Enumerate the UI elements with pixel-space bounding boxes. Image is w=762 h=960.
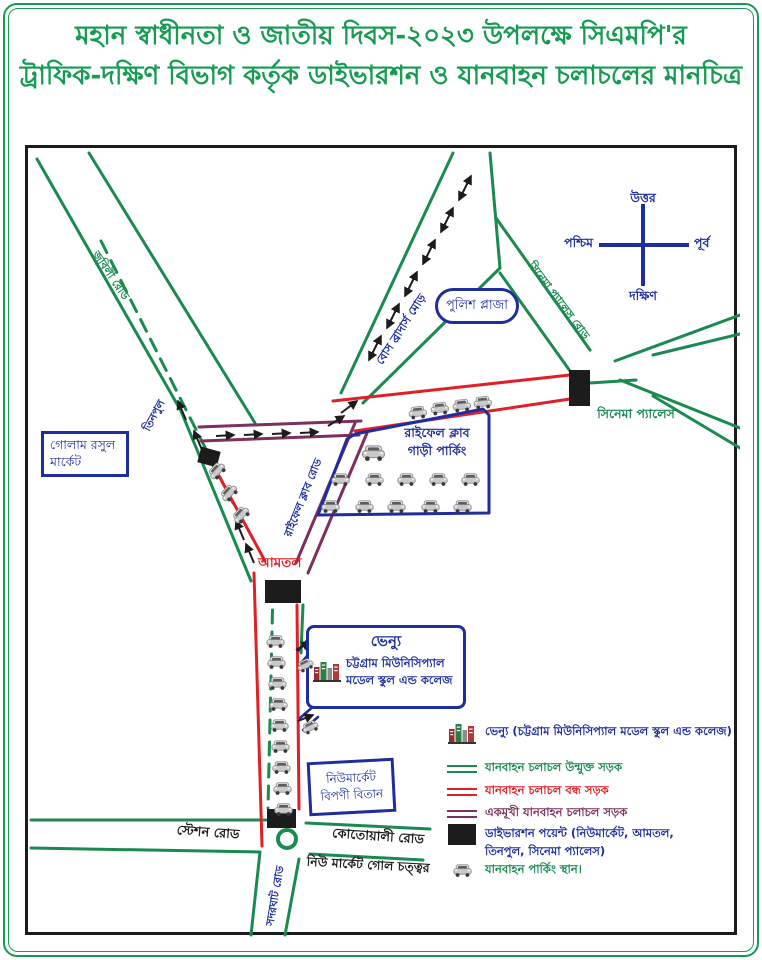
arrow-icon xyxy=(341,401,357,413)
legend-closed-road-text: যানবাহন চলাচল বন্ধ সড়ক xyxy=(485,782,609,801)
road-line-closed xyxy=(254,573,262,846)
compass-north: উত্তর xyxy=(630,190,656,210)
car-icon xyxy=(397,471,416,484)
oneway-road-line-icon xyxy=(447,810,477,818)
car-icon xyxy=(272,759,291,772)
car-icon xyxy=(269,696,288,709)
poster-title: মহান স্বাধীনতা ও জাতীয় দিবস-২০২৩ উপলক্ষ… xyxy=(0,16,762,97)
car-icon xyxy=(362,442,386,458)
road-line-open xyxy=(341,153,453,393)
car-icon xyxy=(429,471,448,484)
rifle-parking-label: রাইফেল ক্লাব গাড়ী পার্কিং xyxy=(384,424,490,459)
car-icon xyxy=(365,471,384,484)
legend-diversion-text: ডাইভারশন পয়েন্ট (নিউমার্কেট, আমতল, xyxy=(485,825,674,844)
car-icon xyxy=(451,396,471,411)
arrow-icon xyxy=(300,432,318,433)
car-icon xyxy=(274,801,293,814)
rifle-parking-line2: গাড়ী পার্কিং xyxy=(384,442,490,460)
legend-open-road-text: যানবাহন চলাচল উন্মুক্ত সড়ক xyxy=(485,759,622,778)
venue-title: ভেন্যু xyxy=(313,630,459,655)
arrow-icon xyxy=(459,188,465,200)
car-icon xyxy=(446,864,478,877)
golam-rasul-line2: মার্কেট xyxy=(50,454,120,471)
arrow-icon xyxy=(405,284,411,296)
car-icon xyxy=(268,675,287,688)
legend-oneway-road: একমূখী যানবাহন চলাচল সড়ক xyxy=(446,804,627,823)
legend-diversion: ডাইভারশন পয়েন্ট (নিউমার্কেট, আমতল, xyxy=(446,824,674,845)
car-icon xyxy=(355,498,374,511)
diversion-point-rect xyxy=(569,370,590,406)
road-line-open xyxy=(490,153,500,268)
legend-open-road: যানবাহন চলাচল উন্মুক্ত সড়ক xyxy=(446,759,622,778)
arrow-icon xyxy=(423,252,429,264)
arrow-icon xyxy=(244,434,262,435)
cinema-palace-label: সিনেমা প্যালেস xyxy=(597,406,675,426)
bipani-line2: বিপণী বিতান xyxy=(320,785,383,805)
car-icon xyxy=(321,498,340,511)
road-line-oneway xyxy=(199,421,361,427)
arrow-icon xyxy=(411,272,417,284)
newmarket-bipani-box: নিউমার্কেট বিপণী বিতান xyxy=(307,758,397,816)
arrow-icon xyxy=(429,240,435,252)
car-icon xyxy=(429,399,449,414)
car-icon xyxy=(270,717,289,730)
road-line-open xyxy=(653,334,740,355)
venue-building-icon xyxy=(446,720,478,744)
golam-rasul-market-box: গোলাম রসুল মার্কেট xyxy=(41,431,129,477)
road-line-open xyxy=(31,848,260,852)
car-icon xyxy=(273,780,292,793)
police-plaza-label: পুলিশ প্লাজা xyxy=(446,296,508,317)
compass-east: পূর্ব xyxy=(694,235,709,255)
legend-parking-text: যানবাহন পার্কিং স্থান। xyxy=(485,861,582,880)
diversion-point-rect xyxy=(265,580,301,603)
title-line-2: ট্রাফিক-দক্ষিণ বিভাগ কর্তৃক ডাইভারশন ও য… xyxy=(0,56,762,96)
compass-south: দক্ষিণ xyxy=(629,288,657,308)
venue-line2: মডেল স্কুল এন্ড কলেজ xyxy=(346,672,452,689)
legend-closed-road: যানবাহন চলাচল বন্ধ সড়ক xyxy=(446,782,609,801)
map-legend: ভেন্যু (চট্টগ্রাম মিউনিসিপ্যাল মডেল স্কু… xyxy=(446,718,740,903)
traffic-map-poster: { "title": { "line1": "মহান স্বাধীনতা ও … xyxy=(0,0,762,960)
amtol-label: আমতল xyxy=(258,552,301,575)
car-icon xyxy=(387,498,406,511)
venue-box: ভেন্যু চট্টগ্রাম মিউনিসিপ্যাল মডেল স্কুল… xyxy=(306,625,466,709)
legend-parking: যানবাহন পার্কিং স্থান। xyxy=(446,861,582,880)
arrow-icon xyxy=(393,304,399,316)
compass-rose: উত্তর পশ্চিম পূর্ব দক্ষিণ xyxy=(573,190,713,302)
legend-oneway-road-text: একমূখী যানবাহন চলাচল সড়ক xyxy=(485,804,627,823)
road-line-closed xyxy=(297,605,299,809)
legend-venue-text: ভেন্যু (চট্টগ্রাম মিউনিসিপ্যাল মডেল স্কু… xyxy=(485,723,732,742)
road-line-open xyxy=(251,852,260,935)
car-icon xyxy=(453,498,472,511)
rifle-parking-line1: রাইফেল ক্লাব xyxy=(384,424,490,442)
legend-diversion-line2: তিনপুল, সিনেমা প্যালেস) xyxy=(485,843,605,862)
arrow-icon xyxy=(246,544,254,563)
closed-road-line-icon xyxy=(447,788,477,796)
traffic-map: গোলাম রসুল মার্কেট পুলিশ প্লাজা ভেন্যু চ… xyxy=(25,145,737,935)
compass-west: পশ্চিম xyxy=(564,235,593,255)
car-icon xyxy=(267,654,286,667)
car-icon xyxy=(266,633,285,646)
road-line-open xyxy=(181,411,251,581)
title-line-1: মহান স্বাধীনতা ও জাতীয় দিবস-২০২৩ উপলক্ষ… xyxy=(0,16,762,56)
car-icon xyxy=(271,738,290,751)
open-road-line-icon xyxy=(447,765,477,773)
golam-rasul-line1: গোলাম রসুল xyxy=(50,437,120,454)
arrow-icon xyxy=(465,176,471,188)
station-road-label: স্টেশন রোড xyxy=(176,821,240,846)
car-icon xyxy=(421,498,440,511)
legend-venue: ভেন্যু (চট্টগ্রাম মিউনিসিপ্যাল মডেল স্কু… xyxy=(446,720,732,744)
roundabout-circle xyxy=(278,830,296,848)
arrow-icon xyxy=(272,433,290,434)
car-icon xyxy=(461,471,480,484)
arrow-icon xyxy=(447,208,453,220)
venue-building-icon xyxy=(313,658,342,686)
car-icon xyxy=(331,471,350,484)
diversion-rect-icon xyxy=(448,824,476,845)
arrow-icon xyxy=(216,435,234,436)
car-icon xyxy=(472,393,492,408)
legend-diversion-text2: তিনপুল, সিনেমা প্যালেস) xyxy=(485,843,605,862)
police-plaza-box: পুলিশ প্লাজা xyxy=(435,288,519,324)
arrow-icon xyxy=(441,220,447,232)
car-icon xyxy=(407,403,427,418)
venue-line1: চট্টগ্রাম মিউনিসিপ্যাল xyxy=(346,655,452,672)
